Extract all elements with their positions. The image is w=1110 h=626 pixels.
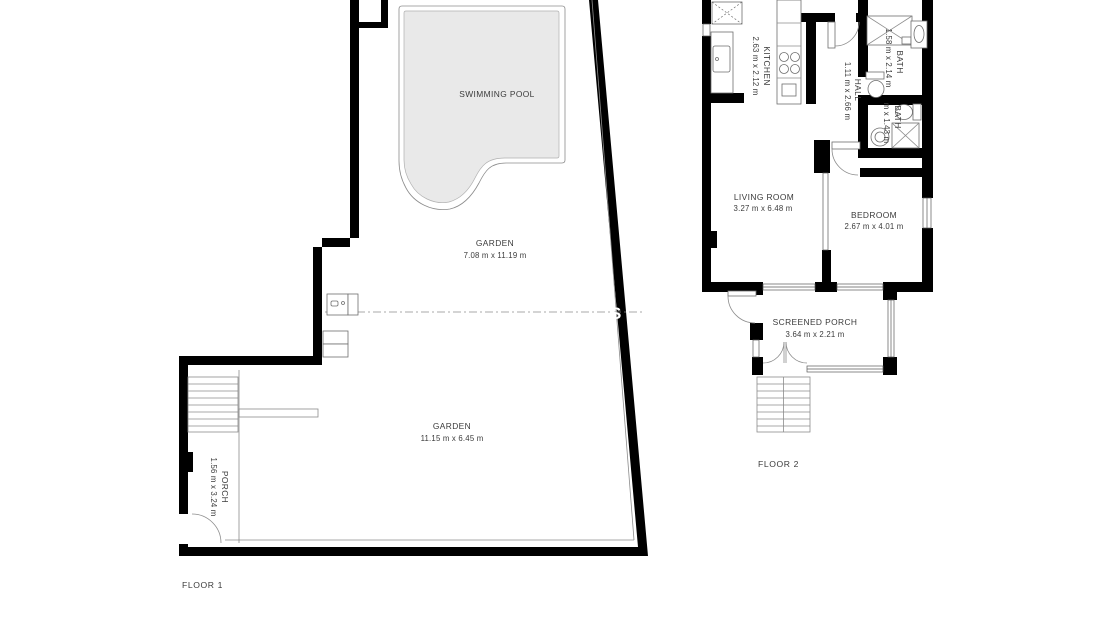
room-label-garden-lower: GARDEN [433,421,471,431]
garden-inner-line-slant [592,0,634,540]
cooktop-icon [777,0,801,104]
porch-french-doors-icon [763,342,807,363]
floorplan-page: SWIMMING POOL GARDEN 7.08 m x 11.19 m GA… [0,0,1110,626]
room-label-bedroom: BEDROOM [851,210,897,220]
living-bedroom-partition [823,173,828,250]
floor2-plan: KITCHEN 2.63 m x 2.12 m HALL 1.11 m x 2.… [702,0,933,469]
room-label-screened-porch: SCREENED PORCH [773,317,858,327]
exterior-stairs-icon [757,377,810,432]
room-dims-bath-top: 1.58 m x 2.14 m [884,29,893,88]
room-dims-garden-upper: 7.08 m x 11.19 m [464,251,527,260]
stairs-railing [239,409,318,417]
left-wall-pilaster [188,452,193,472]
room-dims-living-room: 3.27 m x 6.48 m [734,204,793,213]
bath1-toilet-icon [866,72,884,98]
room-dims-porch: 1.56 m x 3.24 m [209,458,218,517]
outdoor-counter-icon [323,331,348,357]
porch-door-opening [178,514,189,544]
bath1-sink-icon [911,21,927,48]
room-dims-bedroom: 2.67 m x 4.01 m [845,222,904,231]
room-dims-bath-lower: m x 1.43 m [882,103,891,144]
room-dims-screened-porch: 3.64 m x 2.21 m [786,330,845,339]
stairs-icon [188,377,238,432]
room-label-hall: HALL [853,79,863,102]
hall-door-icon [828,22,859,48]
room-label-bath-top: BATH [895,50,905,73]
bedroom-door-icon [832,142,860,175]
porch-side-door-icon [728,291,756,323]
room-label-swimming-pool: SWIMMING POOL [459,89,534,99]
watermark-text: S [610,304,621,323]
room-label-living-room: LIVING ROOM [734,192,794,202]
floorplan-canvas: SWIMMING POOL GARDEN 7.08 m x 11.19 m GA… [0,0,1110,626]
floor1-wall-notch-bottom [356,22,388,28]
room-dims-kitchen: 2.63 m x 2.12 m [751,37,760,96]
floor1-label: FLOOR 1 [182,580,223,590]
room-label-kitchen: KITCHEN [762,46,772,86]
room-dims-hall: 1.11 m x 2.66 m [843,62,852,120]
outdoor-sink-icon [327,294,358,315]
porch-door-arc-icon [192,514,221,543]
kitchen-sink-icon [711,32,733,93]
room-label-porch: PORCH [220,471,230,503]
room-dims-garden-lower: 11.15 m x 6.45 m [421,434,484,443]
floor2-label: FLOOR 2 [758,459,799,469]
room-label-bath-lower: BATH [893,105,903,128]
room-label-garden-upper: GARDEN [476,238,514,248]
floor1-plan: SWIMMING POOL GARDEN 7.08 m x 11.19 m GA… [178,0,648,590]
fridge-icon [712,2,742,24]
pool-shape [404,11,559,203]
